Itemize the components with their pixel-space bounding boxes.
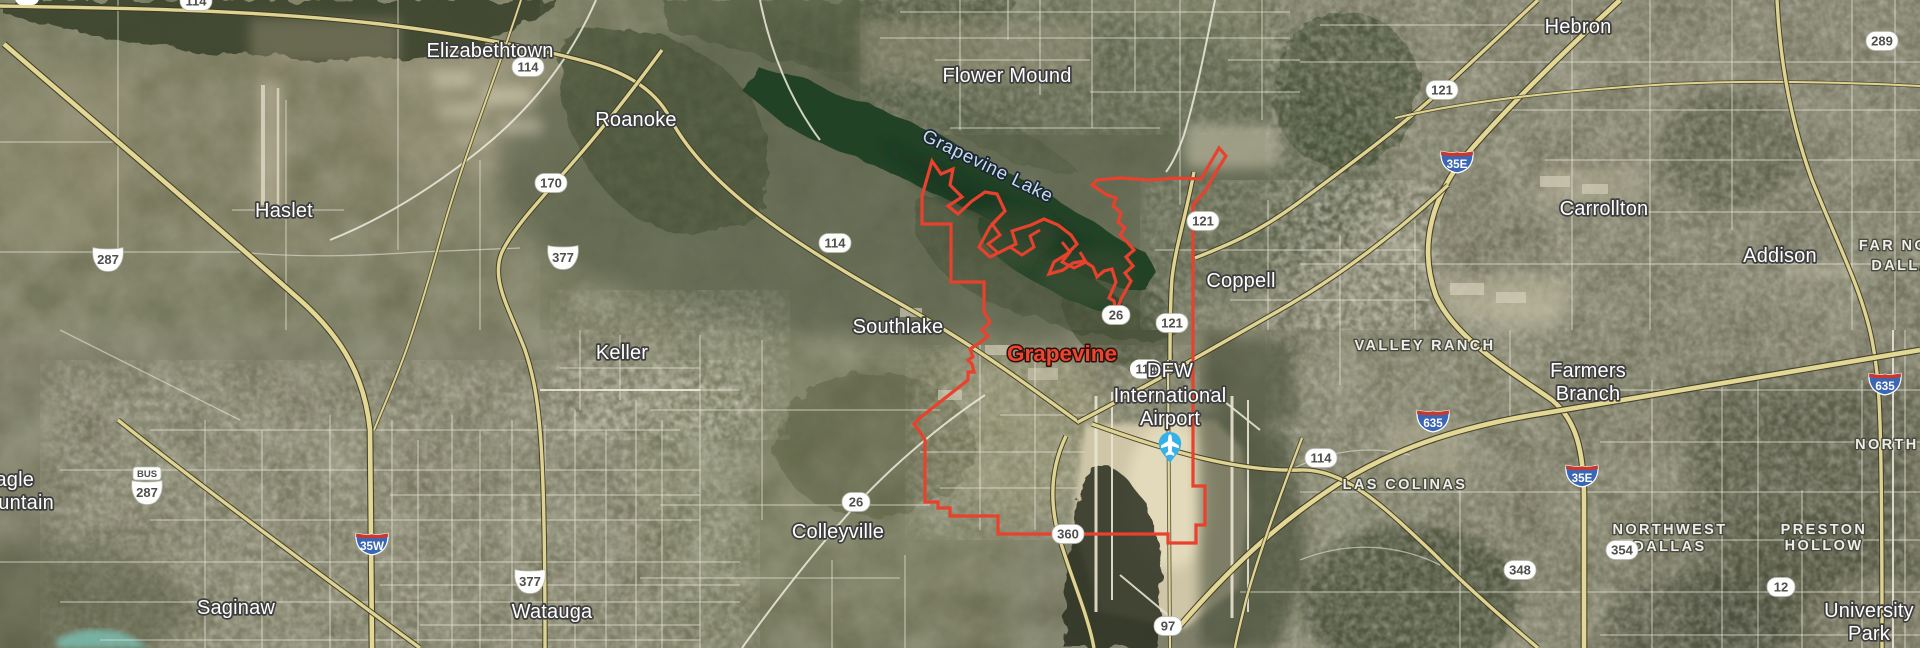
svg-text:377: 377: [552, 250, 574, 265]
svg-text:Coppell: Coppell: [1206, 270, 1275, 292]
svg-text:Carrollton: Carrollton: [1560, 198, 1649, 220]
svg-text:LAS COLINAS: LAS COLINAS: [1343, 477, 1468, 493]
svg-text:Watauga: Watauga: [512, 601, 593, 623]
svg-text:Keller: Keller: [596, 342, 648, 364]
svg-text:Roanoke: Roanoke: [595, 109, 676, 131]
svg-text:287: 287: [97, 252, 119, 267]
svg-text:NORTHWEST: NORTHWEST: [1612, 522, 1727, 538]
svg-text:BUS: BUS: [137, 469, 157, 480]
svg-text:HOLLOW: HOLLOW: [1785, 538, 1864, 554]
svg-text:26: 26: [1109, 308, 1123, 323]
svg-text:114: 114: [186, 0, 208, 9]
svg-text:114: 114: [518, 60, 540, 75]
svg-text:Park: Park: [1848, 623, 1891, 645]
svg-text:114: 114: [1311, 451, 1333, 466]
svg-text:Branch: Branch: [1556, 383, 1621, 405]
svg-text:114: 114: [825, 236, 847, 251]
svg-text:377: 377: [519, 574, 541, 589]
svg-text:635: 635: [1423, 417, 1443, 430]
svg-text:97: 97: [1161, 619, 1175, 634]
svg-text:PRESTON: PRESTON: [1781, 522, 1868, 538]
svg-text:35E: 35E: [1572, 472, 1593, 485]
svg-text:University: University: [1824, 600, 1914, 622]
svg-text:Eagle: Eagle: [0, 469, 34, 491]
svg-text:12: 12: [1774, 580, 1788, 595]
svg-text:287: 287: [136, 485, 158, 500]
svg-text:Hebron: Hebron: [1545, 16, 1612, 38]
svg-text:35E: 35E: [1447, 158, 1468, 171]
svg-text:Addison: Addison: [1743, 245, 1817, 267]
svg-text:26: 26: [849, 495, 863, 510]
svg-text:121: 121: [1161, 316, 1183, 331]
svg-text:FAR NORTH: FAR NORTH: [1859, 238, 1920, 254]
svg-text:35W: 35W: [360, 540, 384, 553]
svg-text:354: 354: [1611, 543, 1633, 558]
svg-text:121: 121: [1431, 83, 1453, 98]
svg-text:Airport: Airport: [1140, 408, 1201, 430]
svg-text:Farmers: Farmers: [1550, 360, 1626, 382]
svg-text:360: 360: [1057, 527, 1079, 542]
svg-text:DALLAS: DALLAS: [1633, 539, 1706, 555]
svg-text:Colleyville: Colleyville: [792, 521, 884, 543]
svg-text:International: International: [1114, 385, 1227, 407]
svg-text:Saginaw: Saginaw: [197, 597, 275, 619]
svg-text:170: 170: [540, 176, 562, 191]
svg-text:Southlake: Southlake: [853, 316, 944, 338]
svg-text:348: 348: [1509, 563, 1531, 578]
svg-text:Grapevine: Grapevine: [1007, 341, 1117, 366]
svg-text:NORTH DA: NORTH DA: [1855, 437, 1920, 453]
svg-text:Haslet: Haslet: [255, 200, 313, 222]
svg-text:Flower Mound: Flower Mound: [942, 65, 1071, 87]
svg-text:289: 289: [1871, 34, 1893, 49]
svg-text:DFW: DFW: [1147, 360, 1193, 382]
svg-text:Mountain: Mountain: [0, 492, 54, 514]
svg-text:121: 121: [1192, 214, 1214, 229]
svg-text:DALLAS: DALLAS: [1871, 258, 1920, 274]
svg-text:VALLEY RANCH: VALLEY RANCH: [1354, 338, 1495, 354]
svg-text:635: 635: [1875, 380, 1895, 393]
